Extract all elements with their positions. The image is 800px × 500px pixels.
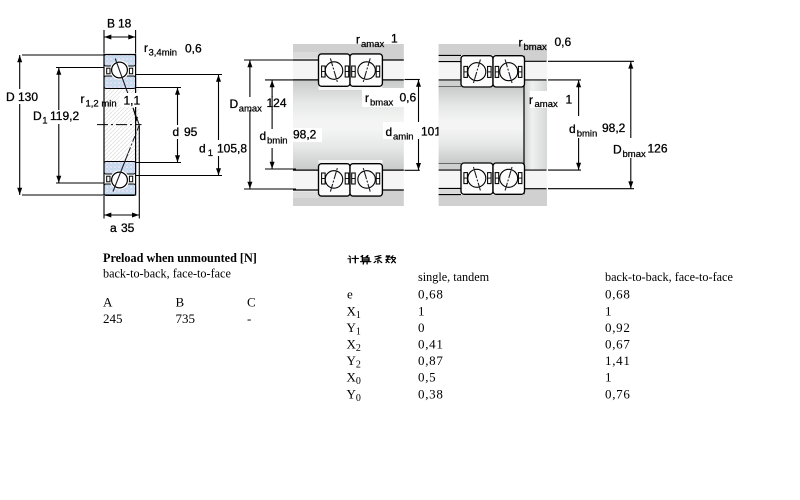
svg-text:bmin: bmin xyxy=(577,129,598,140)
svg-text:1,2 min: 1,2 min xyxy=(86,99,117,110)
svg-text:130: 130 xyxy=(18,90,38,104)
svg-text:r: r xyxy=(144,41,148,55)
svg-text:245: 245 xyxy=(103,311,123,326)
svg-text:0,6: 0,6 xyxy=(185,42,202,56)
svg-text:r: r xyxy=(519,36,523,50)
svg-text:d: d xyxy=(386,125,393,139)
svg-text:a: a xyxy=(110,221,117,235)
svg-text:D: D xyxy=(6,90,15,104)
svg-text:0,68: 0,68 xyxy=(418,287,444,302)
svg-text:1: 1 xyxy=(418,303,425,318)
svg-text:0,68: 0,68 xyxy=(605,287,631,302)
svg-text:D: D xyxy=(230,97,239,111)
svg-text:0,92: 0,92 xyxy=(605,320,631,335)
svg-text:98,2: 98,2 xyxy=(602,121,626,135)
svg-text:0,38: 0,38 xyxy=(418,386,444,401)
svg-text:B: B xyxy=(176,295,185,310)
svg-text:0,76: 0,76 xyxy=(605,386,631,401)
svg-text:1: 1 xyxy=(42,116,47,127)
svg-text:3,4min: 3,4min xyxy=(149,48,178,59)
svg-text:126: 126 xyxy=(648,142,668,156)
svg-text:-: - xyxy=(247,311,251,326)
svg-text:Preload when unmounted [N]: Preload when unmounted [N] xyxy=(103,251,257,265)
svg-text:back-to-back, face-to-face: back-to-back, face-to-face xyxy=(103,267,231,281)
svg-text:735: 735 xyxy=(176,311,196,326)
svg-text:0,41: 0,41 xyxy=(418,337,444,352)
svg-text:1,41: 1,41 xyxy=(605,353,631,368)
svg-text:0,87: 0,87 xyxy=(418,353,444,368)
svg-text:amax: amax xyxy=(239,104,262,115)
svg-text:98,2: 98,2 xyxy=(293,128,317,142)
svg-text:e: e xyxy=(347,287,353,302)
svg-text:0,67: 0,67 xyxy=(605,337,631,352)
svg-text:1: 1 xyxy=(605,370,612,385)
svg-text:r: r xyxy=(365,91,369,105)
svg-text:amin: amin xyxy=(393,132,414,143)
svg-text:bmax: bmax xyxy=(623,149,646,160)
svg-text:0,6: 0,6 xyxy=(400,91,417,105)
svg-text:119,2: 119,2 xyxy=(50,109,79,123)
svg-text:1: 1 xyxy=(566,93,573,107)
svg-text:1: 1 xyxy=(605,303,612,318)
svg-text:d: d xyxy=(260,129,267,143)
svg-text:D: D xyxy=(33,109,42,123)
svg-text:amax: amax xyxy=(535,99,558,110)
svg-text:d: d xyxy=(173,125,180,139)
svg-text:1,1: 1,1 xyxy=(124,94,141,108)
svg-text:124: 124 xyxy=(267,96,287,110)
svg-text:single, tandem: single, tandem xyxy=(418,270,490,284)
svg-text:d: d xyxy=(569,122,576,136)
svg-text:d: d xyxy=(199,142,206,156)
svg-text:bmax: bmax xyxy=(524,42,547,53)
svg-text:bmin: bmin xyxy=(267,136,288,147)
svg-text:C: C xyxy=(247,295,256,310)
svg-text:B: B xyxy=(107,17,115,31)
svg-text:D: D xyxy=(613,143,622,157)
svg-text:101: 101 xyxy=(421,125,441,139)
svg-text:1: 1 xyxy=(391,32,398,46)
svg-text:18: 18 xyxy=(118,17,132,31)
svg-text:back-to-back, face-to-face: back-to-back, face-to-face xyxy=(605,270,733,284)
svg-text:r: r xyxy=(356,33,360,47)
svg-text:35: 35 xyxy=(121,221,135,235)
svg-text:0: 0 xyxy=(418,320,425,335)
svg-text:r: r xyxy=(529,93,533,107)
svg-text:r: r xyxy=(81,92,85,106)
svg-text:A: A xyxy=(103,295,113,310)
svg-text:0,5: 0,5 xyxy=(418,370,436,385)
svg-text:105,8: 105,8 xyxy=(217,142,247,156)
svg-text:amax: amax xyxy=(361,39,384,50)
svg-text:bmax: bmax xyxy=(370,98,393,109)
svg-text:0,6: 0,6 xyxy=(555,35,572,49)
svg-text:95: 95 xyxy=(184,125,198,139)
svg-text:1: 1 xyxy=(208,148,213,159)
